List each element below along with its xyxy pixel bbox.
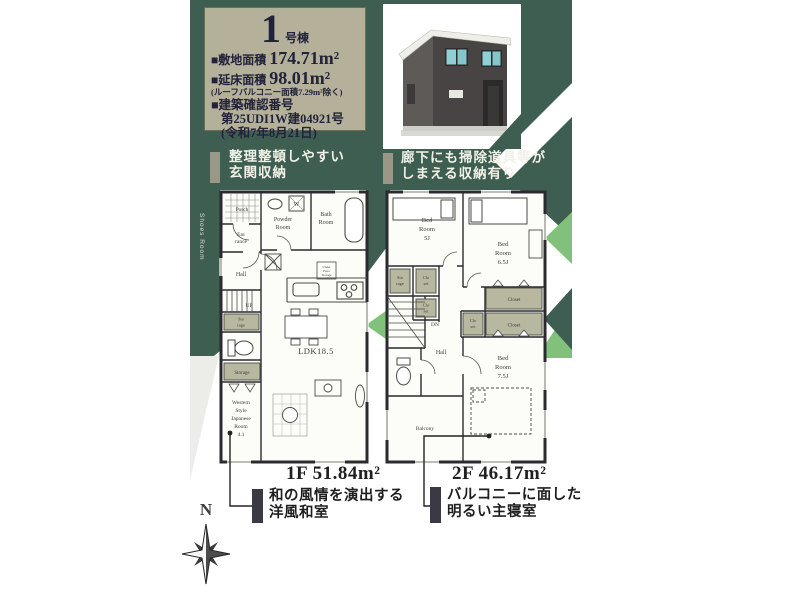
compass: N — [168, 498, 244, 594]
closet3-label-2: set — [471, 324, 477, 329]
permit-label: ■建築確認番号 — [211, 98, 359, 112]
storage-wide-label: Storage — [234, 371, 250, 376]
room-label-bed65-1: Bed — [498, 241, 509, 248]
callout-hallway-storage-line2: しまえる収納有り — [401, 166, 546, 182]
site-area-label: ■敷地面積 — [211, 53, 266, 67]
room-label-bath-1: Bath — [320, 212, 331, 218]
permit-number: 第25UDI1W建04921号 — [211, 112, 359, 126]
floor-plan-2f: Bed Room 5J Bed Room 6.5J Sto rage Clo s… — [385, 190, 547, 464]
room-label-bed5-3: 5J — [424, 235, 430, 242]
site-area-row: ■敷地面積 174.71m² — [211, 48, 359, 68]
wsj-label-5: 4.1 — [238, 432, 245, 438]
room-label-bed65-3: 6.5J — [498, 259, 509, 266]
underfloor-label-3: Storage — [322, 273, 332, 277]
room-label-hall-1f: Hall — [236, 272, 247, 278]
closet-a-label: Closet — [508, 298, 521, 303]
house-vent-box — [449, 90, 463, 98]
room-label-bed5-1: Bed — [422, 217, 433, 224]
shoes-room-side-label: Shoes Room — [198, 213, 205, 283]
site-area-value: 174.71m² — [269, 48, 339, 68]
room-label-bed75-1: Bed — [498, 355, 509, 362]
stairs-down-label: DN — [431, 322, 439, 328]
room-label-entrance-2: rance — [235, 239, 247, 245]
ldk-label: LDK18.5 — [298, 346, 334, 356]
storage-small-label-1: Sto — [238, 317, 245, 322]
stairs-up-label: UP — [245, 303, 252, 309]
washer-label: W — [294, 202, 300, 208]
closet3-label-1: Clo — [470, 318, 477, 323]
round-table-icon — [283, 408, 298, 423]
callout-bar-japanese-room — [252, 489, 263, 523]
callout-bar-hallway-storage — [383, 153, 393, 184]
bg-left-strip — [190, 190, 220, 375]
callout-master-bedroom-line2: 明るい主寝室 — [447, 504, 582, 521]
storage-2f-label-2: rage — [396, 281, 404, 286]
callout-japanese-room-line1: 和の風情を演出する — [269, 488, 404, 505]
closet-b-label: Closet — [508, 324, 521, 329]
callout-hallway-storage: 廊下にも掃除道具等が しまえる収納有り — [401, 150, 546, 182]
room-label-balcony: Balcony — [416, 426, 435, 432]
room-label-bed5-2: Room — [419, 226, 435, 233]
floor1-area-title: 1F 51.84m² — [286, 463, 380, 485]
room-label-hall-2f: Hall — [436, 350, 447, 356]
callout-japanese-room-line2: 洋風和室 — [269, 505, 404, 522]
house-front-window-right — [481, 50, 502, 67]
room-label-entrance-1: Ent — [237, 232, 245, 238]
floor-area-note: (ルーフバルコニー面積7.29m²除く) — [211, 88, 359, 98]
callout-hallway-storage-line1: 廊下にも掃除道具等が — [401, 150, 546, 166]
floor2-area-title: 2F 46.17m² — [452, 463, 546, 485]
house-door — [488, 86, 499, 128]
callout-master-bedroom: バルコニーに面した 明るい主寝室 — [447, 487, 582, 521]
compass-north-label: N — [200, 500, 213, 519]
room-label-bed75-3: 7.5J — [498, 373, 509, 380]
house-side-window — [407, 84, 415, 104]
floor-area-label: ■延床面積 — [211, 73, 266, 87]
house-front-window-left — [445, 48, 468, 66]
property-info-box: 1 号棟 ■敷地面積 174.71m² ■延床面積 98.01m² (ルーフバル… — [204, 7, 366, 131]
unit-number: 1 — [261, 6, 281, 51]
flyer-canvas: Shoes Room 1 号棟 ■敷地面積 174.71m² ■延床面積 98.… — [0, 0, 796, 597]
bathtub-icon — [345, 198, 363, 242]
callout-entrance-storage: 整理整頓しやすい 玄関収納 — [229, 149, 345, 181]
closet1-label-2: set — [424, 281, 430, 286]
wsj-label-2: Style — [235, 408, 247, 414]
callout-japanese-room: 和の風情を演出する 洋風和室 — [269, 488, 404, 522]
closet1-label-1: Clo — [423, 275, 430, 280]
compass-shaded-half — [206, 524, 230, 584]
house-3d-render-image — [383, 4, 521, 149]
floor-plan-1f: Porch Ent rance W Powder Room Bath Room … — [219, 190, 369, 464]
callout-bar-master-bedroom — [430, 487, 441, 523]
wsj-label-3: Japanese — [231, 416, 251, 422]
callout-entrance-storage-line1: 整理整頓しやすい — [229, 149, 345, 165]
wsj-label-1: Western — [232, 400, 250, 406]
toilet-icon-2f — [397, 358, 411, 385]
toilet-icon-1f — [228, 340, 253, 356]
wsj-label-4: Room — [234, 424, 248, 430]
permit-date: (令和7年8月21日) — [211, 126, 359, 140]
room-label-bed65-2: Room — [495, 250, 511, 257]
storage-2f-label-1: Sto — [397, 275, 404, 280]
callout-entrance-storage-line2: 玄関収納 — [229, 165, 345, 181]
storage-small-label-2: rage — [237, 323, 245, 328]
house-foundation — [403, 126, 507, 131]
unit-number-row: 1 号棟 — [211, 10, 359, 48]
unit-suffix: 号棟 — [285, 31, 309, 45]
room-label-powder-2: Room — [276, 225, 291, 231]
room-label-powder-1: Powder — [274, 217, 292, 223]
bed-icon-65j — [469, 198, 527, 224]
floor-area-row: ■延床面積 98.01m² — [211, 68, 359, 88]
callout-master-bedroom-line1: バルコニーに面した — [447, 487, 582, 504]
floor-area-value: 98.01m² — [269, 68, 330, 88]
callout-bar-entrance-storage — [210, 152, 220, 183]
closet2-label-1: Clo — [423, 303, 430, 308]
room-label-porch: Porch — [236, 207, 249, 213]
house-photo-box — [383, 4, 521, 149]
room-label-bed75-2: Room — [495, 364, 511, 371]
room-label-bath-2: Room — [319, 220, 334, 226]
